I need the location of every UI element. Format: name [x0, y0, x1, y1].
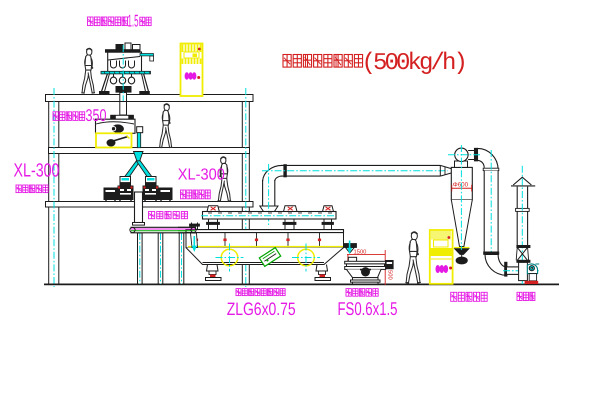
svg-text:1.5: 1.5 — [128, 11, 139, 30]
svg-text:XL-300: XL-300 — [178, 167, 225, 184]
svg-text:XL-300: XL-300 — [14, 161, 60, 182]
svg-text:Φ600: Φ600 — [453, 182, 469, 189]
svg-text:FS0.6x1.5: FS0.6x1.5 — [338, 298, 398, 319]
svg-text:1500: 1500 — [354, 249, 367, 256]
svg-text:(500kg/h): (500kg/h) — [362, 50, 466, 77]
svg-text:ZLG6x0.75: ZLG6x0.75 — [227, 299, 296, 319]
svg-text:500: 500 — [387, 270, 394, 280]
svg-text:350: 350 — [86, 106, 107, 125]
